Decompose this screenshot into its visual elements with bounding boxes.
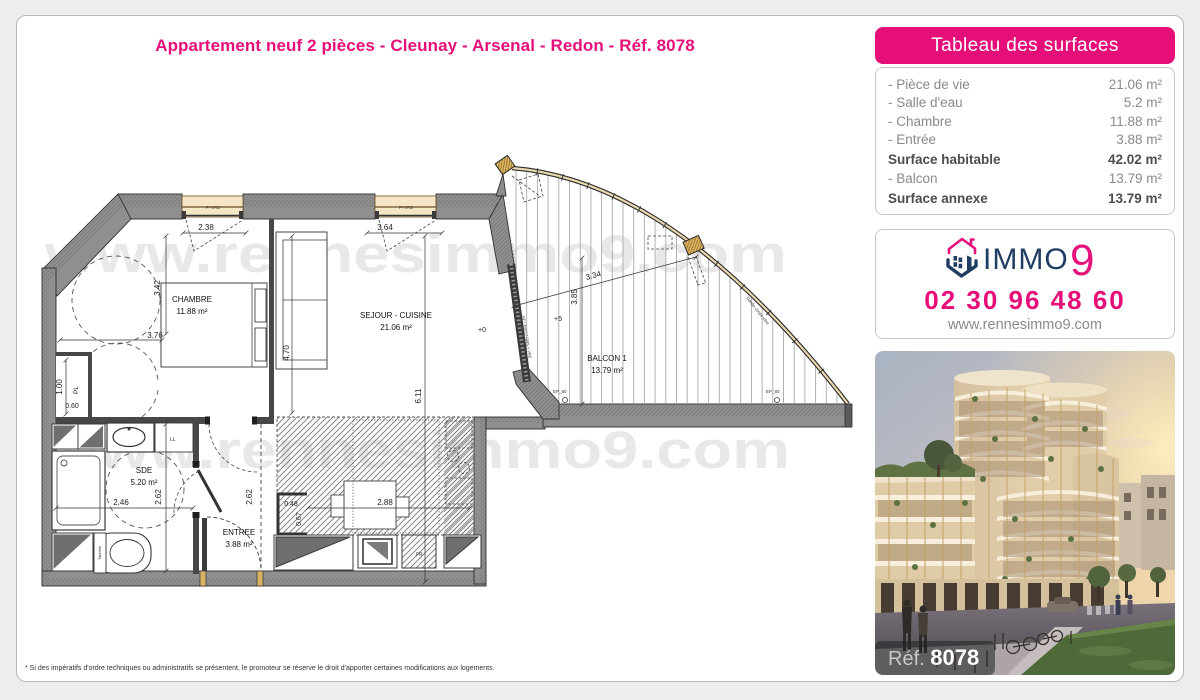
svg-text:2.62: 2.62: [154, 489, 163, 505]
svg-text:6.11: 6.11: [414, 388, 423, 404]
svg-text:3.88 m²: 3.88 m²: [225, 540, 252, 549]
svg-text:2.88: 2.88: [377, 498, 393, 507]
svg-text:4.70: 4.70: [282, 345, 291, 361]
svg-text:0.48: 0.48: [284, 501, 298, 508]
svg-text:0.60: 0.60: [65, 403, 79, 410]
svg-text:Tablette: Tablette: [97, 545, 102, 560]
svg-text:3.85: 3.85: [570, 289, 579, 305]
svg-text:CHAMBRE: CHAMBRE: [172, 295, 212, 304]
svg-text:2.62: 2.62: [245, 489, 254, 505]
svg-text:13.79 m²: 13.79 m²: [591, 366, 623, 375]
svg-text:BALCON 1: BALCON 1: [587, 354, 627, 363]
svg-text:9: 9: [1070, 236, 1094, 280]
svg-text:EP_80: EP_80: [766, 389, 780, 394]
svg-text:SEJOUR - CUISINE: SEJOUR - CUISINE: [360, 311, 432, 320]
svg-text:F+VR2: F+VR2: [399, 205, 414, 210]
svg-text:F+VR2: F+VR2: [206, 205, 221, 210]
svg-text:0.67: 0.67: [296, 512, 303, 526]
svg-text:5.20 m²: 5.20 m²: [130, 478, 157, 487]
svg-text:2.38: 2.38: [198, 223, 214, 232]
svg-text:FR: FR: [416, 552, 423, 558]
svg-text:+5: +5: [554, 316, 562, 323]
svg-text:1.00: 1.00: [55, 379, 64, 395]
svg-text:IMMO: IMMO: [983, 243, 1069, 276]
svg-text:SDE: SDE: [136, 466, 152, 475]
svg-text:2.46: 2.46: [113, 498, 129, 507]
svg-text:EP_80: EP_80: [553, 389, 567, 394]
svg-text:+0: +0: [478, 327, 486, 334]
svg-text:3.64: 3.64: [377, 223, 393, 232]
svg-text:3.76: 3.76: [147, 331, 163, 340]
svg-text:11.88 m²: 11.88 m²: [177, 307, 208, 316]
svg-text:21.06 m²: 21.06 m²: [380, 323, 412, 332]
svg-text:PL: PL: [73, 386, 80, 394]
svg-text:LL: LL: [170, 437, 176, 443]
svg-text:ENTREE: ENTREE: [223, 528, 255, 537]
svg-text:3.42: 3.42: [153, 280, 162, 296]
